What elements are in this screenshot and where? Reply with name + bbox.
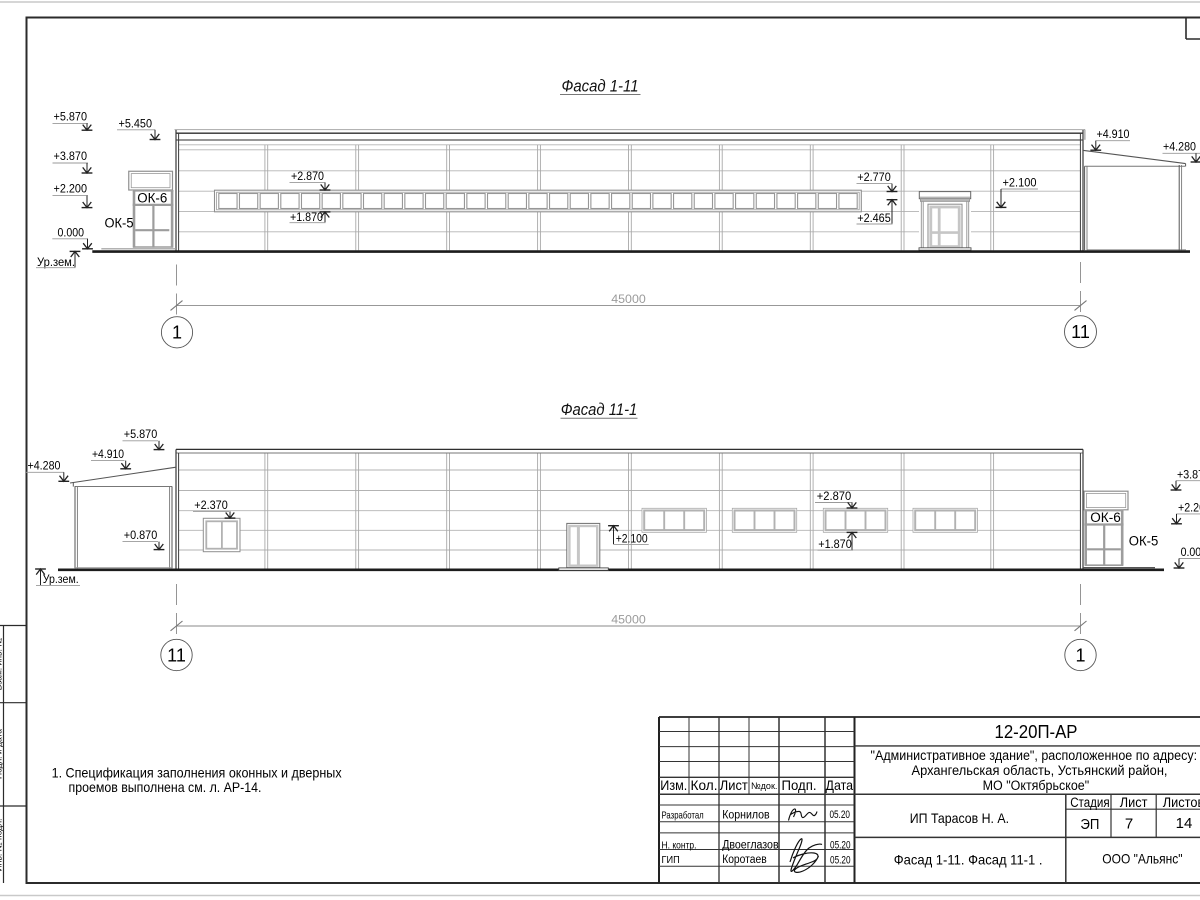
svg-text:ГИП: ГИП — [662, 854, 680, 866]
svg-text:+3.870: +3.870 — [1177, 467, 1200, 481]
svg-text:+5.870: +5.870 — [124, 427, 158, 441]
svg-text:7: 7 — [1125, 816, 1133, 833]
svg-text:+2.200: +2.200 — [54, 181, 88, 195]
svg-text:Лист: Лист — [1120, 795, 1148, 810]
svg-text:+2.870: +2.870 — [817, 489, 852, 503]
svg-text:14: 14 — [1176, 815, 1193, 832]
svg-text:1: 1 — [172, 323, 182, 343]
svg-text:Ур.зем.: Ур.зем. — [37, 255, 75, 269]
svg-text:ОК-5: ОК-5 — [1129, 534, 1159, 549]
svg-text:+2.200: +2.200 — [1178, 501, 1200, 515]
svg-text:+4.910: +4.910 — [92, 447, 124, 461]
svg-text:ОК-6: ОК-6 — [1090, 510, 1121, 525]
svg-text:0.000: 0.000 — [1181, 545, 1200, 559]
svg-text:Фасад 1-11. Фасад 11-1 .: Фасад 1-11. Фасад 11-1 . — [894, 851, 1043, 867]
svg-text:+4.280: +4.280 — [1163, 139, 1196, 153]
svg-text:45000: 45000 — [611, 292, 646, 306]
svg-text:+2.100: +2.100 — [1003, 176, 1037, 190]
svg-text:05.20: 05.20 — [829, 809, 850, 821]
svg-text:№док.: №док. — [751, 781, 778, 792]
svg-text:"Административное здание", рас: "Административное здание", расположенное… — [871, 748, 1198, 763]
svg-text:ООО "Альянс": ООО "Альянс" — [1102, 850, 1182, 866]
svg-text:12-20П-АР: 12-20П-АР — [995, 721, 1078, 742]
svg-text:Подп. и дата: Подп. и дата — [0, 729, 4, 779]
svg-text:1: 1 — [1075, 645, 1085, 665]
svg-text:Инв. № подл.: Инв. № подл. — [0, 819, 4, 872]
svg-text:1. Спецификация заполнения око: 1. Спецификация заполнения оконных и две… — [52, 766, 342, 781]
svg-text:+1.870: +1.870 — [818, 537, 852, 551]
svg-text:Кол.: Кол. — [691, 777, 718, 793]
svg-text:Лист: Лист — [720, 777, 749, 793]
svg-text:+1.870: +1.870 — [290, 210, 323, 224]
svg-text:Взам. инв. №: Взам. инв. № — [0, 638, 4, 691]
svg-text:МО "Октябрьское": МО "Октябрьское" — [983, 778, 1090, 793]
svg-text:11: 11 — [167, 645, 186, 665]
svg-text:+2.370: +2.370 — [194, 498, 228, 512]
svg-text:45000: 45000 — [611, 612, 646, 626]
svg-text:ОК-5: ОК-5 — [105, 216, 134, 231]
svg-text:+4.910: +4.910 — [1097, 127, 1130, 141]
svg-text:05.20: 05.20 — [830, 855, 851, 867]
svg-text:проемов выполнена см. л. АР-14: проемов выполнена см. л. АР-14. — [69, 780, 262, 795]
svg-text:ИП Тарасов Н. А.: ИП Тарасов Н. А. — [910, 810, 1009, 826]
svg-text:Н. контр.: Н. контр. — [662, 840, 697, 852]
svg-text:+5.870: +5.870 — [54, 110, 88, 124]
svg-text:+4.280: +4.280 — [28, 459, 61, 473]
svg-text:Корнилов: Корнилов — [722, 809, 770, 821]
svg-text:Разработал: Разработал — [662, 809, 704, 821]
svg-text:+2.465: +2.465 — [857, 211, 891, 225]
svg-text:Изм.: Изм. — [660, 777, 687, 793]
svg-text:05.20: 05.20 — [830, 839, 851, 851]
svg-text:Фасад 11-1: Фасад 11-1 — [561, 401, 638, 419]
svg-text:Архангельская область, Устьянс: Архангельская область, Устьянский район, — [912, 763, 1168, 778]
svg-text:Двоеглазов: Двоеглазов — [722, 840, 778, 852]
svg-text:Стадия: Стадия — [1070, 795, 1109, 810]
svg-text:+0.870: +0.870 — [124, 528, 158, 542]
svg-text:+3.870: +3.870 — [54, 149, 88, 163]
svg-text:Листов: Листов — [1163, 795, 1200, 810]
svg-text:0.000: 0.000 — [58, 226, 85, 240]
svg-text:Фасад 1-11: Фасад 1-11 — [562, 78, 639, 96]
svg-text:+2.100: +2.100 — [616, 533, 648, 545]
svg-text:+2.770: +2.770 — [857, 170, 891, 184]
svg-text:ЭП: ЭП — [1080, 816, 1099, 833]
svg-text:ОК-6: ОК-6 — [137, 191, 167, 206]
svg-text:+2.870: +2.870 — [291, 169, 324, 183]
svg-text:+5.450: +5.450 — [119, 116, 153, 130]
svg-text:Подп.: Подп. — [782, 777, 817, 793]
svg-text:Дата: Дата — [826, 777, 854, 793]
svg-text:Коротаев: Коротаев — [722, 854, 767, 866]
svg-text:Ур.зем.: Ур.зем. — [43, 572, 79, 586]
svg-text:11: 11 — [1071, 322, 1090, 342]
